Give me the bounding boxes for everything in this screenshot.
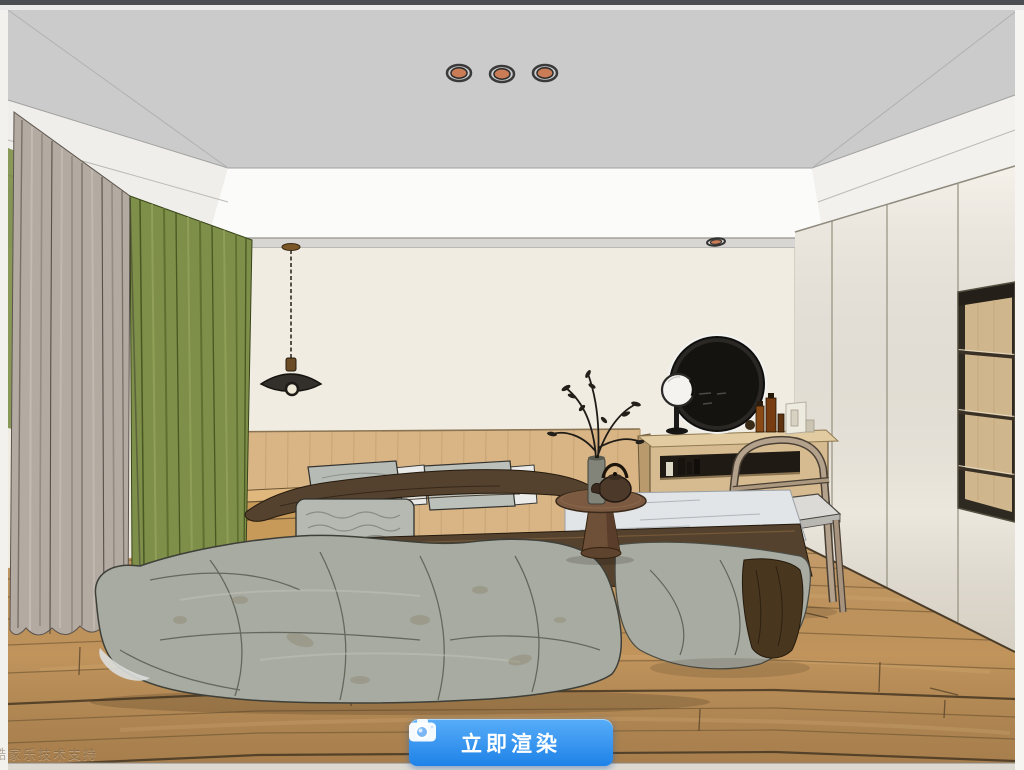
lamp-bulb <box>286 383 298 395</box>
brown-blanket <box>742 559 802 658</box>
downlight-icon <box>490 66 514 82</box>
downlight-icon <box>533 65 557 81</box>
beige-curtain <box>8 112 130 635</box>
downlight-icon <box>447 65 471 81</box>
window-top-border <box>0 0 1024 5</box>
render-preview-viewport: 酷家乐技术支持 立即渲染 <box>0 0 1024 770</box>
green-curtain <box>130 196 252 575</box>
room-scene <box>0 0 1024 770</box>
watermark: 酷家乐技术支持 <box>0 744 98 763</box>
open-shelf-niche <box>958 282 1015 522</box>
ceiling-lightbox <box>208 168 824 238</box>
camera-icon <box>409 719 436 742</box>
duvet <box>95 535 621 703</box>
render-now-button[interactable]: 立即渲染 <box>409 719 613 766</box>
render-button-label: 立即渲染 <box>461 728 561 758</box>
